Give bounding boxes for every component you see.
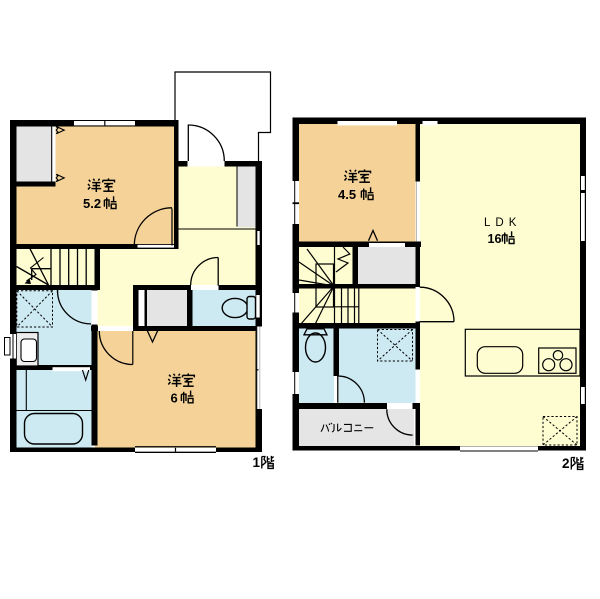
svg-text:LDK: LDK — [484, 217, 521, 229]
svg-text:16: 16 — [488, 232, 502, 246]
svg-text:5.2: 5.2 — [83, 196, 101, 211]
svg-text:2: 2 — [562, 456, 570, 471]
svg-text:4.5: 4.5 — [338, 187, 356, 202]
svg-text:1: 1 — [253, 455, 261, 470]
svg-text:6: 6 — [171, 390, 178, 405]
